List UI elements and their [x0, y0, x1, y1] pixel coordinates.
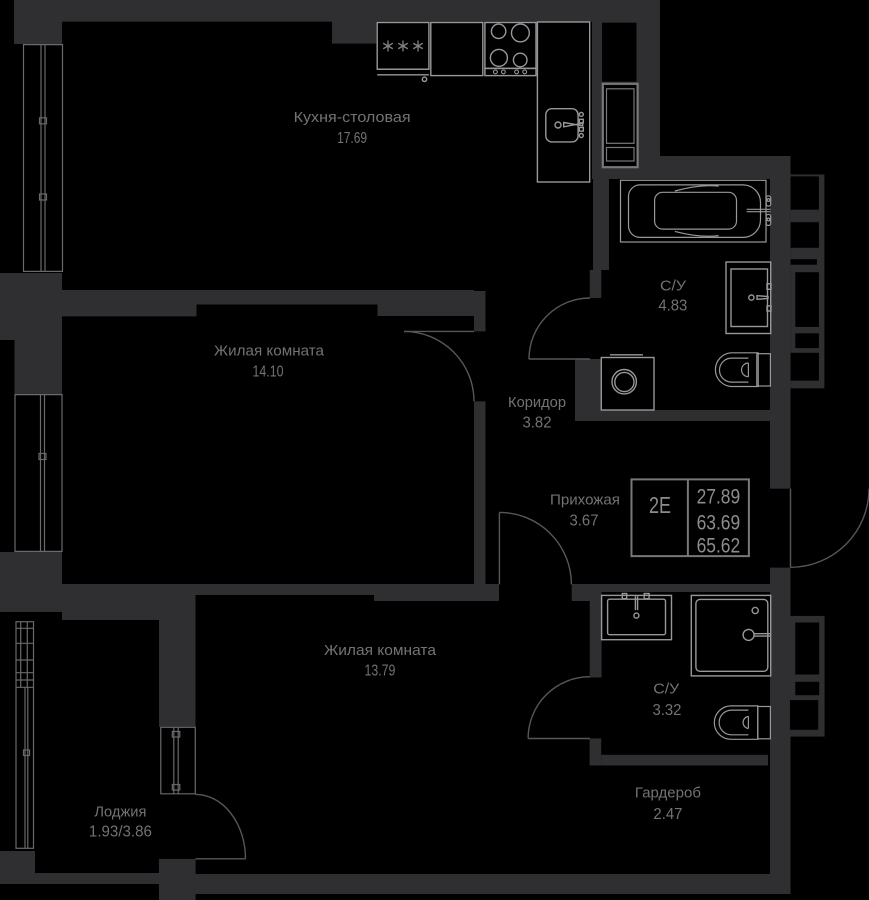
svg-text:Гардероб: Гардероб	[635, 786, 701, 802]
svg-text:Лоджия: Лоджия	[94, 804, 146, 820]
svg-text:Жилая комната: Жилая комната	[324, 643, 437, 659]
svg-text:2.47: 2.47	[653, 806, 682, 823]
svg-text:Коридор: Коридор	[508, 395, 566, 411]
svg-text:Прихожая: Прихожая	[550, 493, 620, 509]
svg-text:17.69: 17.69	[337, 130, 367, 147]
svg-text:Жилая комната: Жилая комната	[214, 343, 325, 359]
svg-text:2Е: 2Е	[649, 492, 671, 518]
svg-text:3.32: 3.32	[652, 702, 681, 719]
svg-text:С/У: С/У	[653, 682, 680, 698]
svg-text:13.79: 13.79	[364, 662, 395, 679]
svg-text:3.67: 3.67	[569, 513, 598, 530]
svg-text:3.82: 3.82	[523, 415, 552, 432]
svg-text:Кухня-столовая: Кухня-столовая	[294, 110, 411, 126]
svg-text:С/У: С/У	[660, 279, 687, 295]
svg-text:27.89: 27.89	[697, 486, 741, 509]
svg-text:1.93/3.86: 1.93/3.86	[89, 823, 152, 840]
svg-text:65.62: 65.62	[697, 534, 741, 557]
svg-text:63.69: 63.69	[697, 511, 741, 534]
svg-text:4.83: 4.83	[658, 298, 687, 315]
svg-text:14.10: 14.10	[253, 363, 284, 380]
